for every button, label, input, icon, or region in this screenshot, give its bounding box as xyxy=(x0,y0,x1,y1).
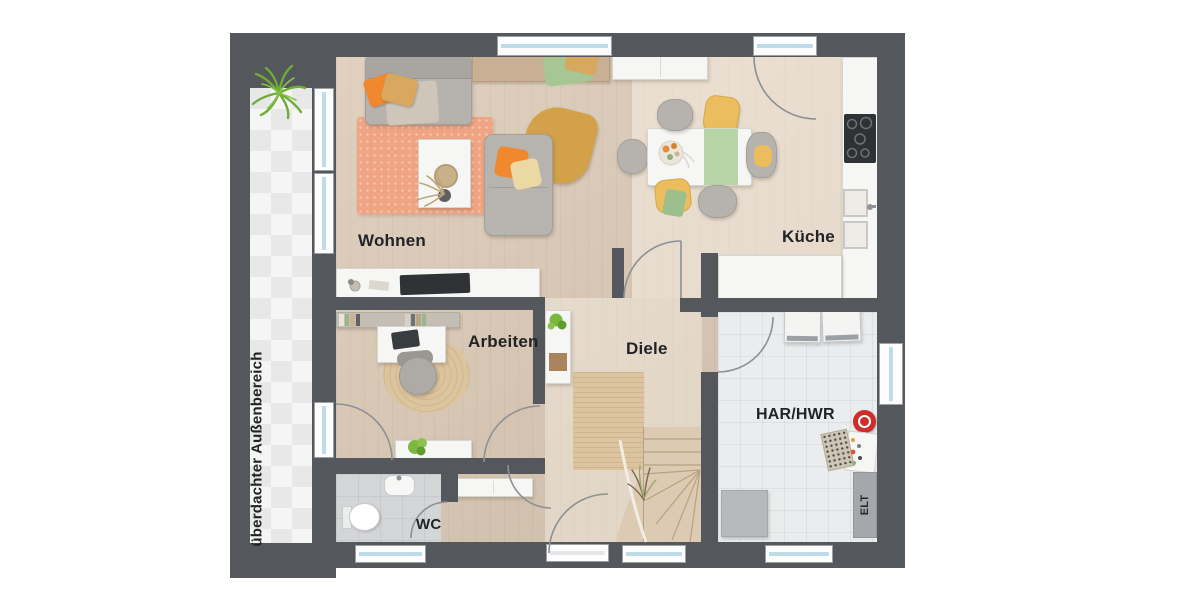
window-glass xyxy=(322,177,326,250)
storage-box xyxy=(721,490,768,537)
hallway-jute-rug xyxy=(573,372,644,470)
dining-chair-gray-bottom xyxy=(698,185,737,218)
wall-hall-har-top xyxy=(701,253,718,317)
washer-door-strip xyxy=(787,336,818,342)
room-label-wohnen: Wohnen xyxy=(358,231,426,251)
window-left-living-2 xyxy=(314,173,334,254)
wall-living-office xyxy=(336,297,543,310)
wall-hall-har-bottom xyxy=(701,372,718,544)
hall-shelf xyxy=(545,310,571,384)
wardrobe-divider xyxy=(493,481,494,494)
window-glass xyxy=(501,44,608,48)
cabinet-divider xyxy=(660,55,661,77)
shelf-books xyxy=(549,353,567,371)
wc-sink xyxy=(384,475,415,496)
dining-chair-gray-right xyxy=(746,132,777,178)
sink-basin-2 xyxy=(843,221,868,249)
dining-table xyxy=(647,128,752,186)
chair-cushion-yellow xyxy=(754,145,772,167)
wall-right xyxy=(877,33,905,568)
office-chair-seat xyxy=(399,357,437,395)
window-glass xyxy=(322,406,326,454)
window-glass xyxy=(889,347,893,401)
table-runner xyxy=(704,129,738,185)
chair-cloth-green xyxy=(662,188,687,217)
vacuum-detail xyxy=(858,415,871,428)
cooktop xyxy=(844,114,876,163)
window-right-har xyxy=(879,343,903,405)
dryer-door-strip xyxy=(825,334,858,340)
floor-plan: ELT xyxy=(0,0,1200,600)
window-left-living-1 xyxy=(314,88,334,171)
sink-basin-1 xyxy=(843,189,868,217)
dining-chair-gray-left xyxy=(617,139,648,174)
window-bottom-har xyxy=(765,545,833,563)
window-glass xyxy=(359,552,422,556)
room-label-arbeiten: Arbeiten xyxy=(468,332,539,352)
wall-office-wc xyxy=(336,458,545,474)
kitchen-counter-bottom xyxy=(718,255,842,300)
kitchen-counter-right xyxy=(842,57,877,300)
window-glass xyxy=(757,44,813,48)
window-glass xyxy=(322,92,326,167)
room-label-diele: Diele xyxy=(626,339,668,359)
dryer xyxy=(821,308,861,342)
room-label-kueche: Küche xyxy=(782,227,835,247)
pillow-yellow xyxy=(509,157,542,190)
window-top-living xyxy=(497,36,612,56)
vacuum-cleaner xyxy=(853,410,876,433)
coffee-table-tray xyxy=(434,164,458,188)
hall-wardrobe xyxy=(453,478,533,497)
outdoor-left-wall xyxy=(230,33,250,578)
window-bottom-diele xyxy=(622,545,686,563)
toilet xyxy=(349,503,380,531)
dining-chair-gray-top xyxy=(657,99,693,131)
window-door-office xyxy=(314,402,334,458)
outdoor-area-label: überdachter Außenbereich xyxy=(249,351,266,546)
room-label-har-hwr: HAR/HWR xyxy=(756,406,835,424)
room-label-wc: WC xyxy=(416,516,441,533)
door-leaf xyxy=(550,551,605,555)
vase-pot xyxy=(438,189,451,202)
window-glass xyxy=(626,552,682,556)
wall-wc-hall xyxy=(441,474,458,502)
tv xyxy=(400,273,471,295)
window-bottom-wc xyxy=(355,545,426,563)
wall-stub-kitchen xyxy=(612,248,624,298)
elt-label: ELT xyxy=(859,495,871,516)
window-glass xyxy=(769,552,829,556)
washing-machine xyxy=(784,311,822,344)
elt-panel: ELT xyxy=(853,472,877,538)
stairs xyxy=(643,427,702,542)
window-door-kitchen xyxy=(753,36,817,56)
front-door xyxy=(546,544,609,562)
